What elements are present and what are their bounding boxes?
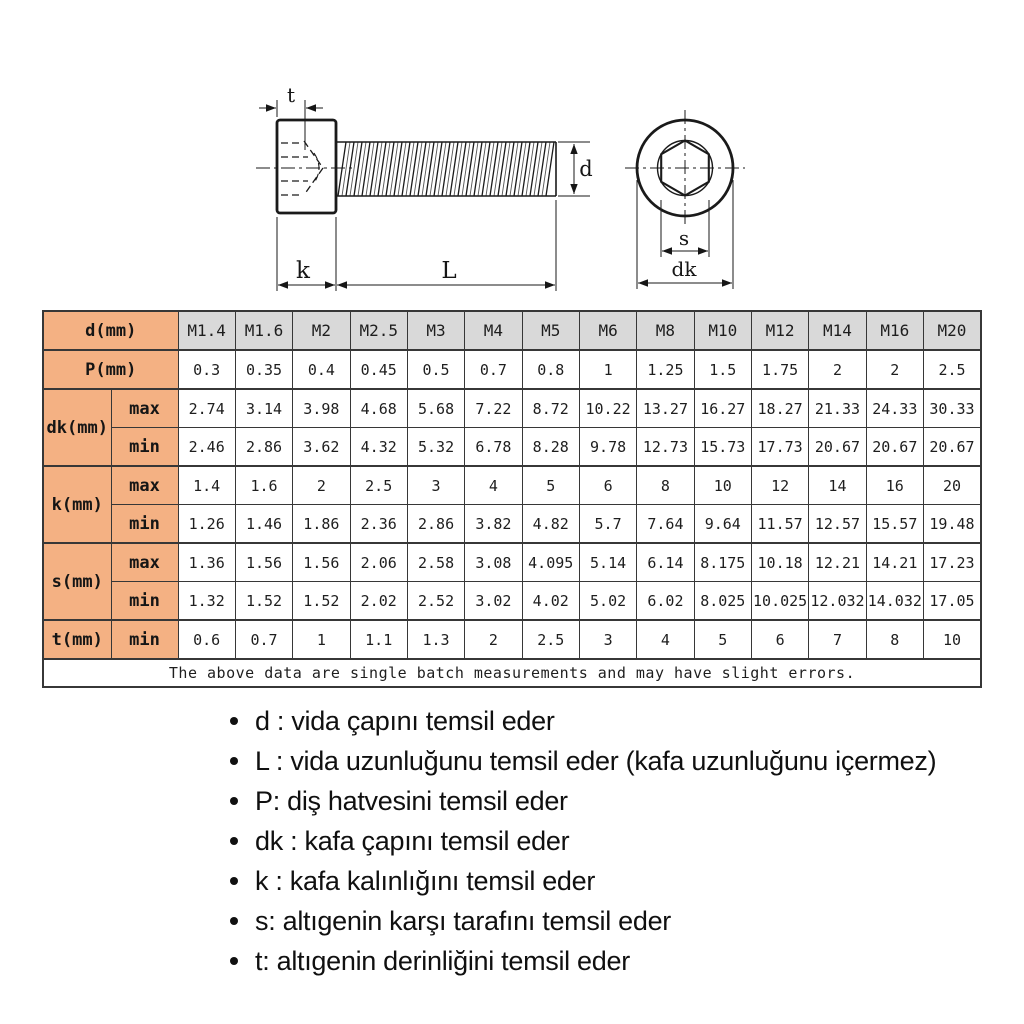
legend-text: k : kafa kalınlığını temsil eder — [255, 866, 595, 897]
value-cell: 1.3 — [407, 620, 464, 659]
value-cell: 3.14 — [235, 389, 292, 428]
value-cell: 1 — [579, 350, 636, 389]
value-cell: 12.57 — [809, 505, 866, 544]
dim-label-k: k — [296, 258, 311, 284]
value-cell: 1.6 — [235, 466, 292, 505]
value-cell: 10 — [923, 620, 981, 659]
value-cell: 0.6 — [178, 620, 235, 659]
minmax-label-cell: min — [111, 428, 178, 467]
value-cell: 5.32 — [407, 428, 464, 467]
dim-label-d: d — [579, 157, 592, 181]
value-cell: 4 — [637, 620, 694, 659]
value-cell: 1.56 — [293, 543, 350, 582]
value-cell: 2.5 — [923, 350, 981, 389]
value-cell: 5 — [522, 466, 579, 505]
value-cell: 10.18 — [751, 543, 808, 582]
thread-shaft — [336, 142, 556, 196]
size-header-cell: M4 — [465, 311, 522, 350]
value-cell: 2.06 — [350, 543, 407, 582]
value-cell: 3 — [579, 620, 636, 659]
value-cell: 7.64 — [637, 505, 694, 544]
value-cell: 5.02 — [579, 582, 636, 621]
bullet-icon — [230, 717, 238, 725]
value-cell: 14.032 — [866, 582, 923, 621]
value-cell: 0.45 — [350, 350, 407, 389]
value-cell: 1.26 — [178, 505, 235, 544]
value-cell: 15.73 — [694, 428, 751, 467]
spec-table: d(mm)M1.4M1.6M2M2.5M3M4M5M6M8M10M12M14M1… — [42, 310, 982, 688]
value-cell: 30.33 — [923, 389, 981, 428]
dim-label-s: s — [679, 226, 689, 250]
size-header-cell: M2.5 — [350, 311, 407, 350]
value-cell: 3.98 — [293, 389, 350, 428]
end-centerlines — [625, 110, 745, 228]
legend-item-dk: dk : kafa çapını temsil eder — [230, 821, 1010, 861]
bullet-icon — [230, 797, 238, 805]
value-cell: 17.73 — [751, 428, 808, 467]
value-cell: 11.57 — [751, 505, 808, 544]
value-cell: 1.56 — [235, 543, 292, 582]
minmax-label-cell: min — [111, 505, 178, 544]
value-cell: 2 — [809, 350, 866, 389]
value-cell: 8.175 — [694, 543, 751, 582]
param-label-cell: s(mm) — [43, 543, 111, 620]
value-cell: 2.74 — [178, 389, 235, 428]
value-cell: 0.8 — [522, 350, 579, 389]
value-cell: 0.4 — [293, 350, 350, 389]
value-cell: 2.5 — [522, 620, 579, 659]
size-header-cell: M16 — [866, 311, 923, 350]
value-cell: 17.23 — [923, 543, 981, 582]
value-cell: 3 — [407, 466, 464, 505]
value-cell: 1.4 — [178, 466, 235, 505]
value-cell: 0.5 — [407, 350, 464, 389]
bullet-icon — [230, 957, 238, 965]
size-header-cell: M6 — [579, 311, 636, 350]
screw-head — [277, 120, 336, 213]
legend-item-k: k : kafa kalınlığını temsil eder — [230, 861, 1010, 901]
value-cell: 16.27 — [694, 389, 751, 428]
value-cell: 8 — [637, 466, 694, 505]
value-cell: 6.14 — [637, 543, 694, 582]
value-cell: 1.36 — [178, 543, 235, 582]
value-cell: 10 — [694, 466, 751, 505]
spec-table-body: d(mm)M1.4M1.6M2M2.5M3M4M5M6M8M10M12M14M1… — [43, 311, 981, 687]
legend-item-d: d : vida çapını temsil eder — [230, 701, 1010, 741]
value-cell: 14 — [809, 466, 866, 505]
legend-text: L : vida uzunluğunu temsil eder (kafa uz… — [255, 746, 936, 777]
value-cell: 2 — [866, 350, 923, 389]
value-cell: 12 — [751, 466, 808, 505]
legend-text: t: altıgenin derinliğini temsil eder — [255, 946, 630, 977]
bullet-icon — [230, 917, 238, 925]
value-cell: 20 — [923, 466, 981, 505]
table-corner-label: d(mm) — [43, 311, 178, 350]
minmax-label-cell: min — [111, 620, 178, 659]
value-cell: 21.33 — [809, 389, 866, 428]
value-cell: 24.33 — [866, 389, 923, 428]
value-cell: 2.52 — [407, 582, 464, 621]
table-note: The above data are single batch measurem… — [43, 659, 981, 687]
value-cell: 5 — [694, 620, 751, 659]
value-cell: 4 — [465, 466, 522, 505]
value-cell: 9.64 — [694, 505, 751, 544]
value-cell: 10.025 — [751, 582, 808, 621]
param-label-cell: dk(mm) — [43, 389, 111, 466]
size-header-cell: M12 — [751, 311, 808, 350]
value-cell: 9.78 — [579, 428, 636, 467]
param-label-cell: k(mm) — [43, 466, 111, 543]
value-cell: 4.82 — [522, 505, 579, 544]
value-cell: 1.75 — [751, 350, 808, 389]
legend-text: P: diş hatvesini temsil eder — [255, 786, 568, 817]
legend-item-t: t: altıgenin derinliğini temsil eder — [230, 941, 1010, 981]
value-cell: 4.32 — [350, 428, 407, 467]
value-cell: 2.46 — [178, 428, 235, 467]
value-cell: 12.21 — [809, 543, 866, 582]
value-cell: 15.57 — [866, 505, 923, 544]
bullet-icon — [230, 877, 238, 885]
size-header-cell: M8 — [637, 311, 694, 350]
value-cell: 13.27 — [637, 389, 694, 428]
value-cell: 12.032 — [809, 582, 866, 621]
value-cell: 3.62 — [293, 428, 350, 467]
param-label-cell: t(mm) — [43, 620, 111, 659]
value-cell: 18.27 — [751, 389, 808, 428]
value-cell: 2.5 — [350, 466, 407, 505]
size-header-cell: M14 — [809, 311, 866, 350]
value-cell: 6 — [751, 620, 808, 659]
value-cell: 12.73 — [637, 428, 694, 467]
bullet-icon — [230, 837, 238, 845]
minmax-label-cell: max — [111, 389, 178, 428]
value-cell: 8 — [866, 620, 923, 659]
value-cell: 5.14 — [579, 543, 636, 582]
size-header-cell: M1.6 — [235, 311, 292, 350]
value-cell: 8.025 — [694, 582, 751, 621]
value-cell: 2.36 — [350, 505, 407, 544]
value-cell: 5.7 — [579, 505, 636, 544]
value-cell: 6 — [579, 466, 636, 505]
value-cell: 2.02 — [350, 582, 407, 621]
value-cell: 1.5 — [694, 350, 751, 389]
dim-label-t: t — [287, 83, 295, 107]
value-cell: 1.32 — [178, 582, 235, 621]
param-label-cell: P(mm) — [43, 350, 178, 389]
value-cell: 3.02 — [465, 582, 522, 621]
size-header-cell: M20 — [923, 311, 981, 350]
size-header-cell: M2 — [293, 311, 350, 350]
value-cell: 1 — [293, 620, 350, 659]
size-header-cell: M3 — [407, 311, 464, 350]
value-cell: 4.095 — [522, 543, 579, 582]
legend-text: d : vida çapını temsil eder — [255, 706, 555, 737]
value-cell: 1.25 — [637, 350, 694, 389]
value-cell: 20.67 — [809, 428, 866, 467]
value-cell: 4.68 — [350, 389, 407, 428]
dim-label-L: L — [441, 258, 456, 284]
size-header-cell: M5 — [522, 311, 579, 350]
minmax-label-cell: min — [111, 582, 178, 621]
value-cell: 2.86 — [235, 428, 292, 467]
dim-label-dk: dk — [672, 257, 698, 281]
value-cell: 20.67 — [923, 428, 981, 467]
value-cell: 14.21 — [866, 543, 923, 582]
value-cell: 1.86 — [293, 505, 350, 544]
value-cell: 1.52 — [293, 582, 350, 621]
value-cell: 0.35 — [235, 350, 292, 389]
value-cell: 2.86 — [407, 505, 464, 544]
value-cell: 3.82 — [465, 505, 522, 544]
value-cell: 16 — [866, 466, 923, 505]
value-cell: 4.02 — [522, 582, 579, 621]
value-cell: 17.05 — [923, 582, 981, 621]
minmax-label-cell: max — [111, 466, 178, 505]
value-cell: 20.67 — [866, 428, 923, 467]
size-header-cell: M1.4 — [178, 311, 235, 350]
value-cell: 1.1 — [350, 620, 407, 659]
value-cell: 2 — [293, 466, 350, 505]
value-cell: 0.3 — [178, 350, 235, 389]
screw-technical-drawing: t d k L s dk — [0, 0, 1024, 305]
value-cell: 7 — [809, 620, 866, 659]
size-header-cell: M10 — [694, 311, 751, 350]
legend-list: d : vida çapını temsil eder L : vida uzu… — [230, 701, 1010, 981]
value-cell: 2 — [465, 620, 522, 659]
value-cell: 3.08 — [465, 543, 522, 582]
legend-item-s: s: altıgenin karşı tarafını temsil eder — [230, 901, 1010, 941]
legend-item-P: P: diş hatvesini temsil eder — [230, 781, 1010, 821]
value-cell: 8.72 — [522, 389, 579, 428]
page: t d k L s dk d(mm)M1.4M1.6M2M2.5M3M4M5M6… — [0, 0, 1024, 1024]
value-cell: 2.58 — [407, 543, 464, 582]
legend-text: s: altıgenin karşı tarafını temsil eder — [255, 906, 671, 937]
value-cell: 10.22 — [579, 389, 636, 428]
legend-text: dk : kafa çapını temsil eder — [255, 826, 569, 857]
value-cell: 0.7 — [465, 350, 522, 389]
minmax-label-cell: max — [111, 543, 178, 582]
value-cell: 1.46 — [235, 505, 292, 544]
value-cell: 5.68 — [407, 389, 464, 428]
value-cell: 8.28 — [522, 428, 579, 467]
value-cell: 6.02 — [637, 582, 694, 621]
value-cell: 19.48 — [923, 505, 981, 544]
value-cell: 0.7 — [235, 620, 292, 659]
value-cell: 6.78 — [465, 428, 522, 467]
value-cell: 7.22 — [465, 389, 522, 428]
value-cell: 1.52 — [235, 582, 292, 621]
legend-item-L: L : vida uzunluğunu temsil eder (kafa uz… — [230, 741, 1010, 781]
bullet-icon — [230, 757, 238, 765]
